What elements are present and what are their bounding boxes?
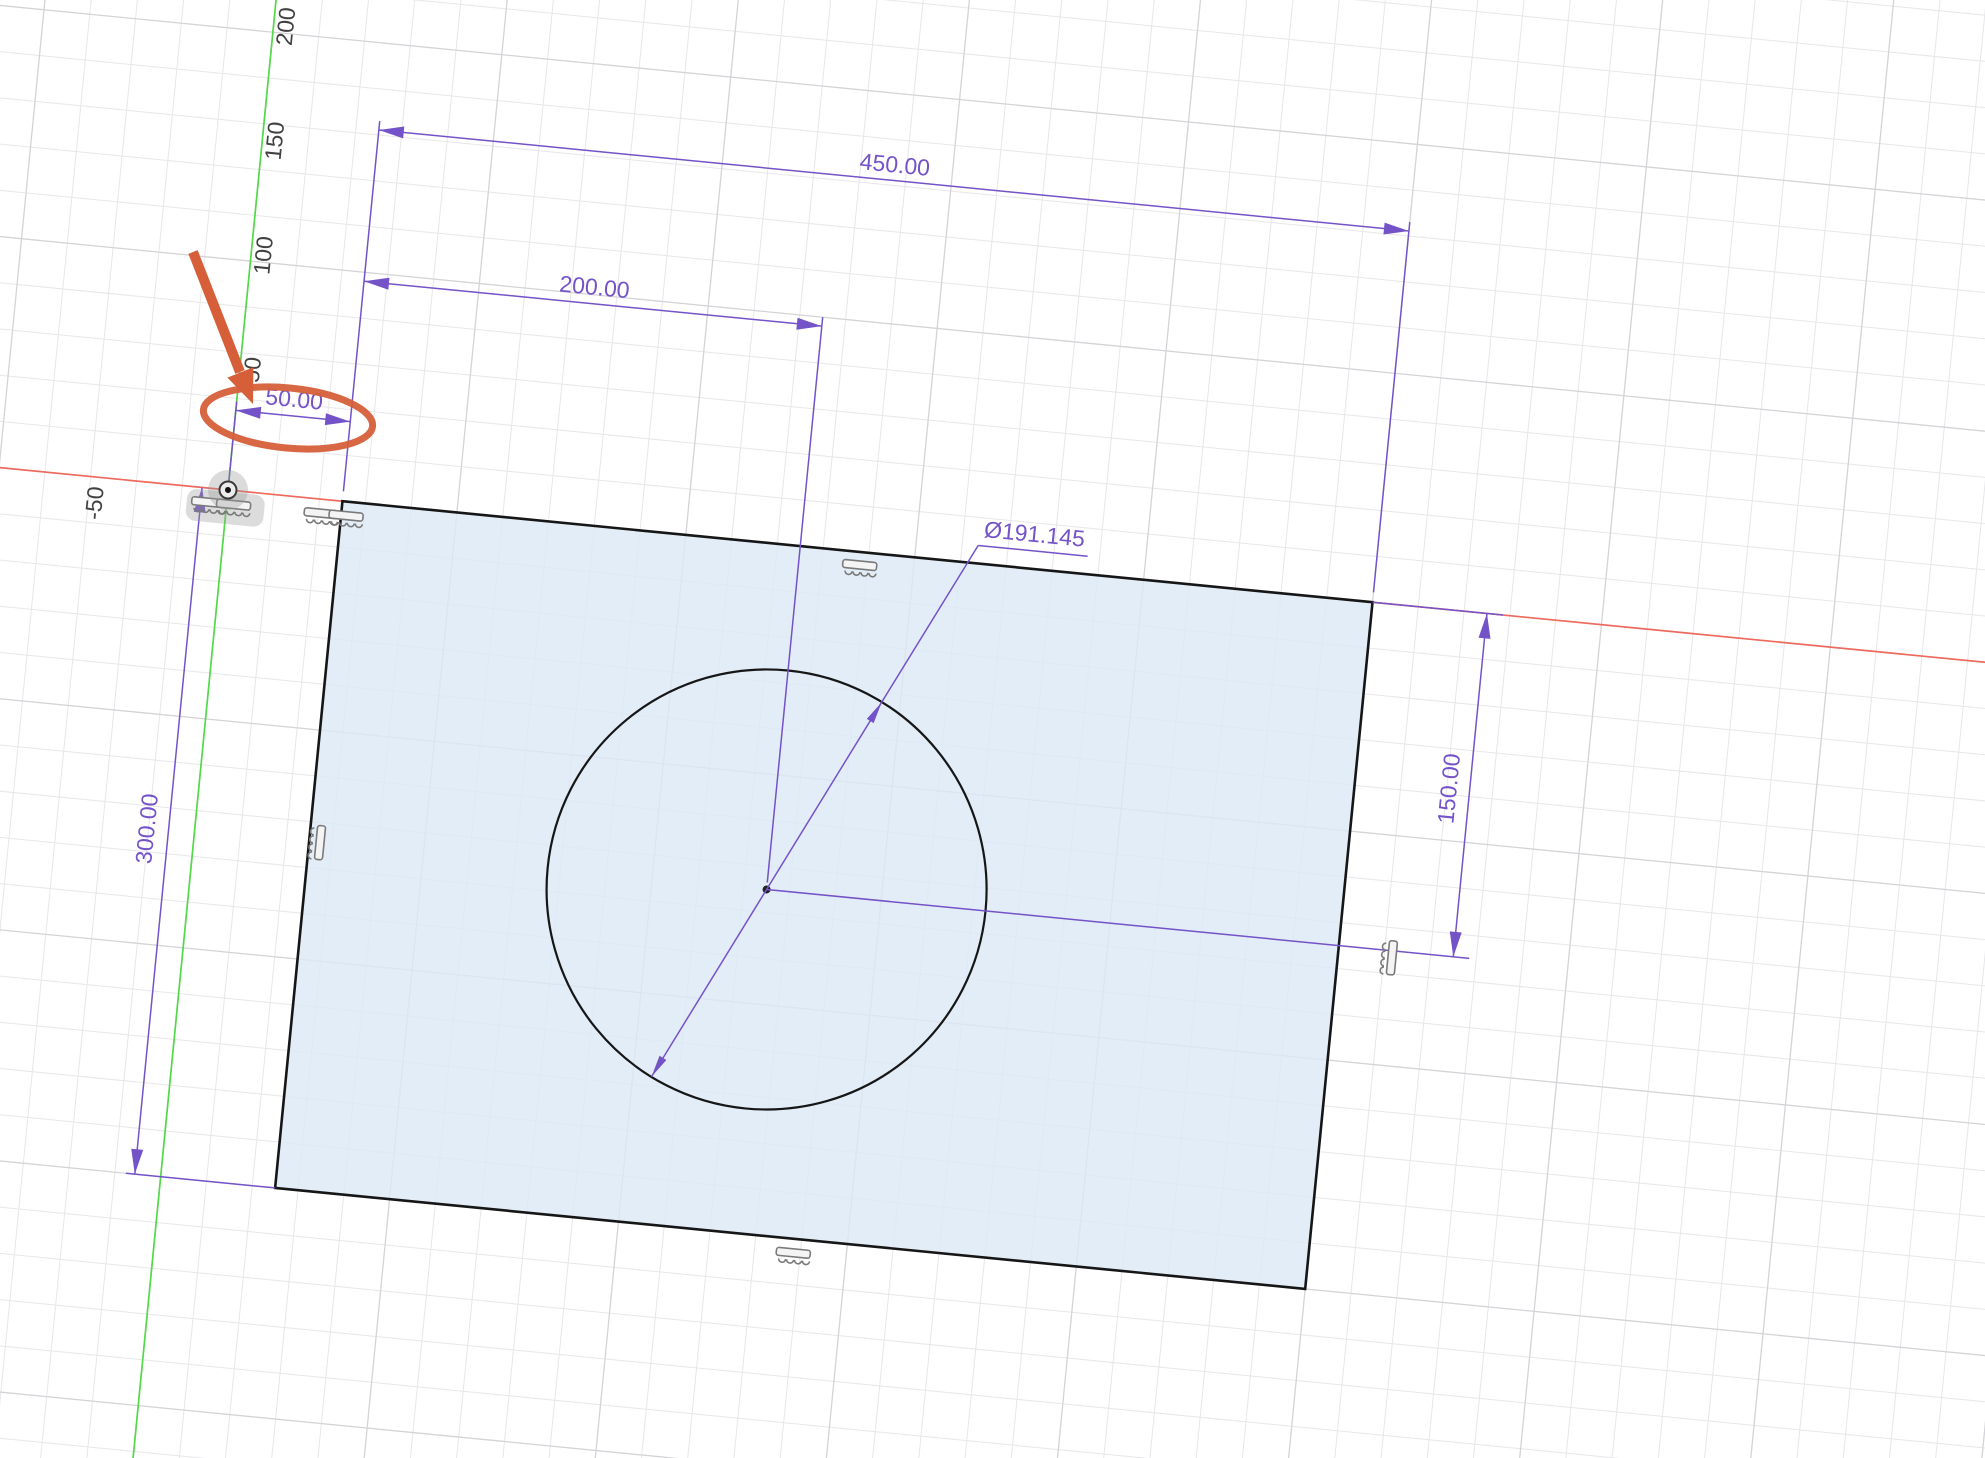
sketch-canvas[interactable]: 200 150 100 50 -50 <box>0 0 1985 1458</box>
x-axis-label-neg50: -50 <box>80 485 109 521</box>
y-axis-label-150: 150 <box>260 120 290 161</box>
y-axis-label-200: 200 <box>271 6 301 47</box>
sketch-viewport: 200 150 100 50 -50 <box>0 0 1985 1458</box>
y-axis-label-100: 100 <box>248 235 278 276</box>
